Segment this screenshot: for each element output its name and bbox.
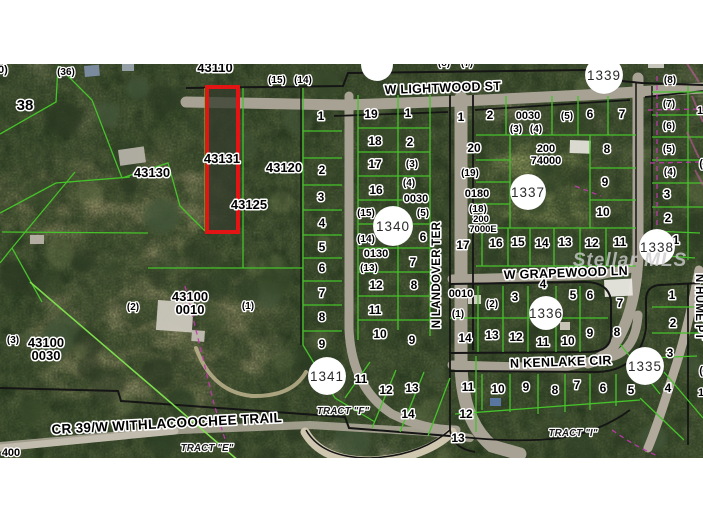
lot-number-label: 17	[368, 157, 382, 171]
lot-number-label: 9	[602, 175, 609, 189]
lot-number-label: 11	[614, 235, 627, 249]
lot-number-label: 2	[670, 316, 677, 330]
lot-number-label: 2	[319, 163, 326, 177]
lot-number-label: 14	[535, 236, 549, 250]
lot-number-label: 6	[587, 288, 594, 302]
lot-number-label: 6	[587, 107, 594, 121]
parcel-map-page: 1234567891918171612111012678912672089101…	[0, 0, 703, 527]
parcel-code-label: 0030	[516, 110, 540, 122]
lot-number-label: 7	[574, 378, 581, 392]
tract-label: TRACT "F"	[317, 406, 370, 417]
lot-number-label: 7	[619, 107, 626, 121]
parcel-ref-label: (1)	[242, 301, 254, 312]
section-circle-marker: 1339	[585, 56, 623, 94]
lot-number-label: 3	[318, 190, 325, 204]
tract-label: TRACT "I"	[549, 428, 598, 439]
lot-number-label: 11	[369, 303, 382, 317]
street-name-label: N HUME PT	[693, 274, 703, 340]
parcel-ref-label: (2)	[127, 302, 139, 313]
building-roof	[84, 65, 100, 77]
lot-number-label: 6	[319, 261, 326, 275]
lot-number-label: 12	[509, 330, 523, 344]
lot-number-label: 3	[512, 290, 519, 304]
lot-number-label: 1	[405, 106, 412, 120]
highlighted-parcel-id-label: 43131	[204, 151, 240, 166]
lot-number-label: 10	[491, 382, 505, 396]
lot-number-label: 6	[420, 230, 427, 244]
lot-number-label: 9	[523, 380, 530, 394]
edge-cut-label: (1)	[699, 365, 703, 377]
parcel-ref-label: (6)	[663, 121, 675, 132]
lot-number-label: 18	[368, 134, 382, 148]
lot-number-label: 9	[409, 333, 416, 347]
parcel-code-label: 0130	[364, 248, 388, 260]
lot-number-label: 9	[319, 337, 326, 351]
lot-number-label: 2	[665, 211, 672, 225]
lot-number-label: 13	[485, 328, 499, 342]
section-circle-marker	[361, 49, 393, 81]
lot-number-label: 8	[604, 142, 611, 156]
section-circle-marker: 1340	[373, 206, 413, 246]
building-roof	[648, 57, 664, 68]
lot-number-label: 7	[319, 286, 326, 300]
lot-number-label: 13	[451, 431, 465, 445]
lot-number-label: 2	[407, 135, 414, 149]
parcel-ref-label: (4)	[664, 167, 676, 178]
parcel-ref-label: (15)	[268, 75, 286, 86]
lot-number-label: 8	[614, 325, 621, 339]
lot-number-label: 8	[411, 278, 418, 292]
parcel-ref-label: (19)	[461, 168, 479, 179]
parcel-map[interactable]: 1234567891918171612111012678912672089101…	[0, 0, 703, 527]
lot-number-label: 4	[665, 381, 672, 395]
section-number-label: 1337	[511, 185, 545, 200]
lot-number-label: 1	[669, 288, 676, 302]
section-number-label: 1336	[529, 306, 563, 321]
section-circle-marker: 1336	[529, 296, 563, 330]
lot-number-label: 6	[600, 381, 607, 395]
edge-cut-label: (30)	[0, 64, 8, 76]
section-circle-marker: 1335	[626, 347, 664, 385]
parcel-ref-label: (5)	[417, 208, 429, 219]
parcel-ref-label: (4)	[530, 124, 542, 135]
building-roof	[490, 398, 501, 406]
lot-number-label: 9	[587, 326, 594, 340]
lot-number-label: 10	[596, 205, 610, 219]
street-name-label: N LANDOVER TER	[431, 221, 443, 328]
parcel-ref-label: (2)	[486, 299, 498, 310]
lot-number-label: 12	[369, 278, 383, 292]
parcel-ref-label: (14)	[357, 234, 375, 245]
parcel-ref-label: (7)	[461, 58, 473, 69]
lot-number-label: 8	[552, 383, 559, 397]
parcel-ref-label: (13)	[360, 263, 378, 274]
section-circle-marker: 1341	[308, 357, 346, 395]
parcel-ref-label: (5)	[561, 111, 573, 122]
lot-number-label: 5	[570, 288, 577, 302]
lot-number-label: 3	[664, 187, 671, 201]
edge-cut-label: (1)	[699, 158, 703, 170]
section-circle-marker: 1337	[510, 174, 546, 210]
stellar-mls-watermark: Stellar MLS	[573, 250, 687, 271]
tract-label: TRACT "E"	[181, 443, 234, 454]
parcel-ref-label: (1)	[452, 309, 464, 320]
parcel-ref-label: (4)	[403, 178, 415, 189]
edge-cut-label: 1	[698, 387, 703, 399]
parcel-id-label: 43120	[266, 160, 302, 175]
lot-number-label: 19	[364, 107, 378, 121]
lot-number-label: 4	[319, 216, 326, 230]
parcel-ref-label: (3)	[7, 335, 19, 346]
lot-number-label: 12	[379, 383, 393, 397]
parcel-ref-label: (5)	[663, 144, 675, 155]
building-roof	[30, 235, 44, 244]
lot-number-label: 5	[319, 240, 326, 254]
lot-number-label: 11	[537, 335, 550, 349]
parcel-id-label: 43130	[134, 165, 170, 180]
parcel-ref-label: (8)	[664, 75, 676, 86]
lot-number-label: 13	[405, 381, 419, 395]
section-number-label: 1341	[310, 369, 344, 384]
lot-number-label: 16	[369, 183, 383, 197]
parcel-id-label: 43125	[231, 197, 267, 212]
parcel-ref-label: (8)	[438, 58, 450, 69]
parcel-code-label: 0010	[449, 288, 473, 300]
lot-number-label: 13	[558, 235, 572, 249]
section-number-label: 1335	[628, 359, 662, 374]
parcel-id-label: 0030	[32, 348, 61, 363]
lot-number-label: 7	[617, 296, 624, 310]
parcel-id-label: 43110	[197, 60, 232, 75]
lot-number-label: 1	[458, 110, 465, 124]
building-roof	[560, 322, 570, 330]
parcel-ref-label: (7)	[663, 99, 675, 110]
parcel-code-label: 7000E	[469, 224, 496, 235]
lot-number-label: 11	[462, 380, 475, 394]
lot-number-label: 15	[511, 235, 525, 249]
lot-number-label: 11	[355, 372, 368, 386]
lot-number-label: 14	[401, 407, 415, 421]
parcel-id-label: 0010	[176, 302, 205, 317]
lot-number-label: 16	[489, 236, 503, 250]
lot-number-label: 20	[467, 141, 481, 155]
lot-number-label: 12	[459, 407, 473, 421]
parcel-code-label: 74000	[531, 155, 562, 167]
lot-number-label: 10	[373, 327, 387, 341]
lot-number-label: 2	[487, 108, 494, 122]
section-number-label: 1339	[587, 68, 621, 83]
edge-cut-label: 1	[697, 105, 703, 117]
parcel-ref-label: (3)	[406, 159, 418, 170]
parcel-ref-label: (14)	[294, 75, 312, 86]
parcel-code-label: 0030	[404, 193, 428, 205]
building-roof	[122, 62, 134, 71]
parcel-code-label: 0180	[465, 188, 489, 200]
parcel-ref-label: (3)	[510, 124, 522, 135]
edge-cut-label: 400	[2, 447, 20, 459]
lot-number-label: 8	[319, 310, 326, 324]
lot-number-label: 14	[458, 331, 472, 345]
lot-number-label: 10	[561, 334, 575, 348]
parcel-id-label: 38	[17, 97, 34, 114]
section-number-label: 1340	[376, 219, 410, 234]
building-roof	[570, 140, 591, 154]
lot-number-label: 3	[667, 346, 674, 360]
lot-number-label: 1	[318, 109, 325, 123]
lot-number-label: 17	[456, 238, 470, 252]
lot-number-label: 5	[628, 383, 635, 397]
lot-number-label: 12	[585, 236, 599, 250]
parcel-code-label: 200	[537, 143, 555, 155]
lot-number-label: 7	[410, 255, 417, 269]
parcel-ref-label: (15)	[357, 208, 375, 219]
parcel-ref-label: (36)	[57, 67, 75, 78]
